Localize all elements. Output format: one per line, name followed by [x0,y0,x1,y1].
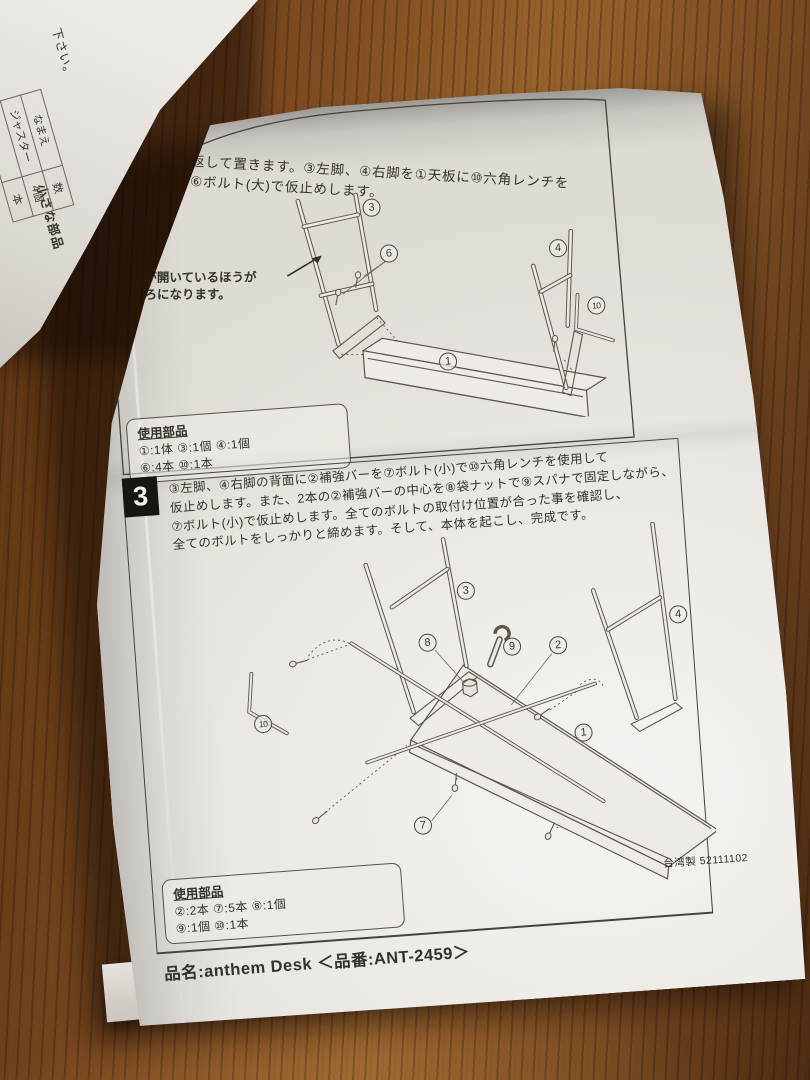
step3-assembly-diagram: 3 4 8 9 2 10 1 7 [140,519,721,929]
step3-diagram-drawing [140,519,721,929]
under-sheet-partial-text: 下さい。 [48,26,79,81]
note-arrow-icon [284,249,330,280]
step3-number-badge: 3 [122,476,160,517]
parts-name-table: なまえ 数 ジャスター 4個 本 [0,89,74,223]
note-line1: 穴が開いているほうが [132,269,292,287]
step2-assembly-diagram: 穴が開いているほうが 後ろになります。 3 6 4 10 1 [124,173,640,449]
photo-scene: 下さい。 小さな部品 なまえ 数 ジャスター 4個 本 [0,0,810,1080]
right-leg-frame-drawing [589,523,684,734]
bolt-small-drawing [311,809,329,825]
bolt-small-drawing [289,658,308,668]
note-line2: 後ろになります。 [132,286,292,304]
hole-orientation-note: 穴が開いているほうが 後ろになります。 [132,269,292,304]
step2-diagram-drawing [124,173,640,449]
